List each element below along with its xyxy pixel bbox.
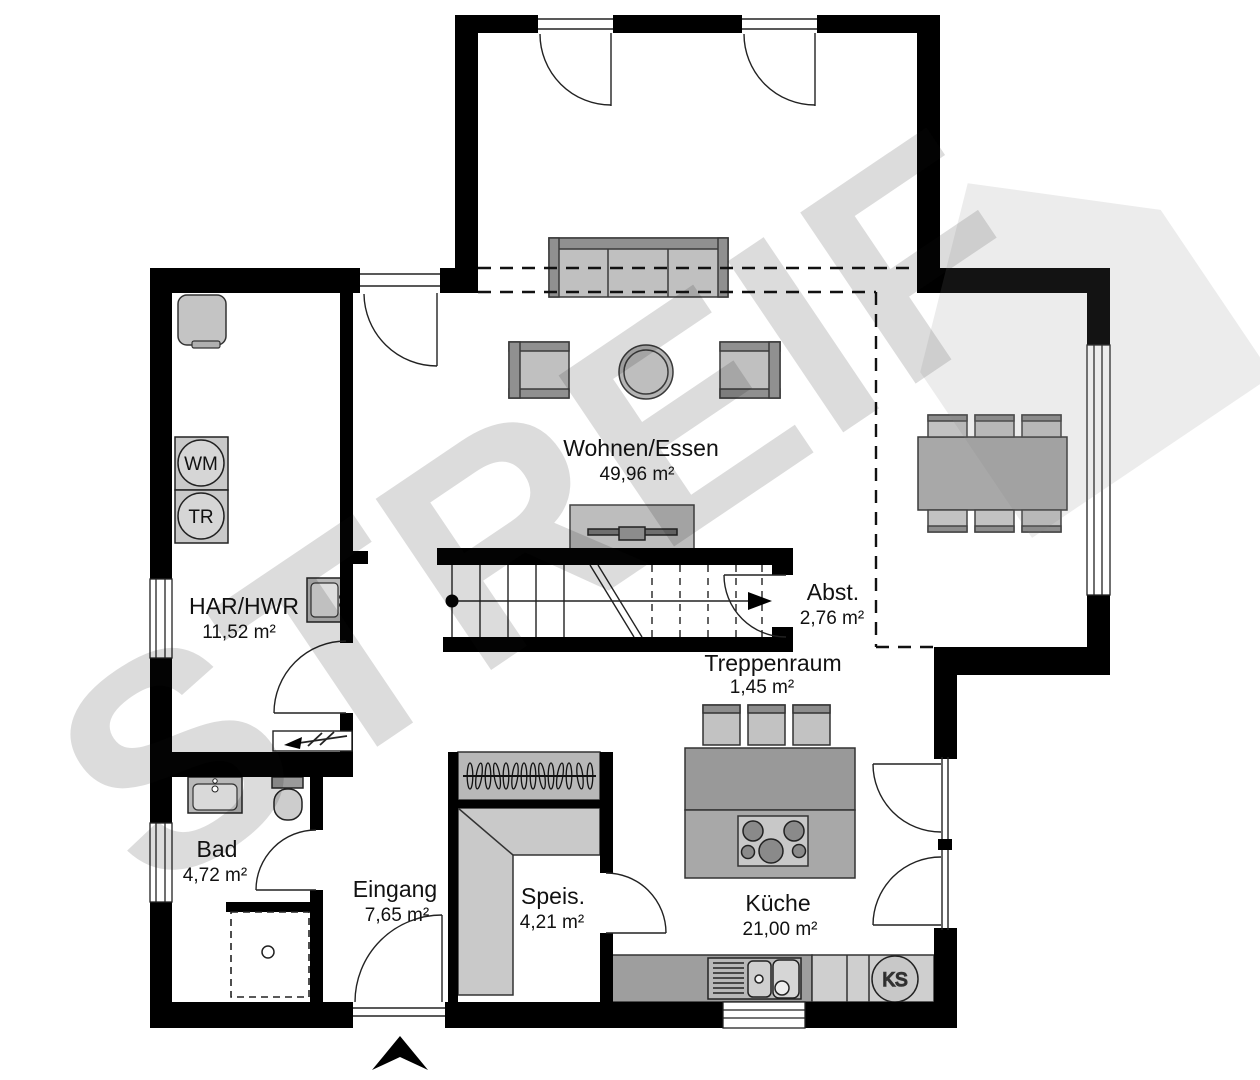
terrace-door-right — [742, 15, 817, 106]
floorplan-svg: KS WM TR — [0, 0, 1260, 1080]
room-area-kueche: 21,00 m² — [743, 919, 818, 940]
fridge: KS — [872, 956, 918, 1002]
room-area-eingang: 7,65 m² — [365, 905, 429, 926]
room-label-kueche: Küche — [745, 890, 810, 916]
wardrobe — [458, 752, 600, 800]
kitchen-counter: KS — [610, 955, 934, 1002]
room-label-treppenraum: Treppenraum — [704, 650, 841, 676]
room-label-eingang: Eingang — [353, 876, 437, 902]
fridge-label: KS — [882, 970, 907, 991]
floorplan-page: KS WM TR — [0, 0, 1260, 1080]
washing-machine-label: WM — [184, 454, 218, 475]
bar-stools — [703, 705, 830, 745]
room-area-abst: 2,76 m² — [800, 608, 864, 629]
kitchen-island — [685, 748, 855, 878]
cooktop — [738, 816, 808, 866]
entrance-door — [353, 915, 445, 1028]
garden-door — [360, 268, 440, 366]
window-kitchen-south — [723, 1002, 805, 1028]
terrace-door-left — [538, 15, 613, 106]
room-area-treppenraum: 1,45 m² — [730, 677, 794, 698]
heater-unit — [178, 295, 226, 348]
washing-machine: WM — [175, 437, 228, 490]
dryer-label: TR — [188, 507, 213, 528]
room-label-speis: Speis. — [521, 883, 585, 909]
speis-door — [606, 873, 666, 933]
north-arrow-icon — [372, 1036, 428, 1070]
kitchen-french-window — [873, 757, 952, 930]
room-label-abst: Abst. — [807, 579, 859, 605]
room-area-speis: 4,21 m² — [520, 912, 584, 933]
sink-unit — [708, 958, 801, 999]
